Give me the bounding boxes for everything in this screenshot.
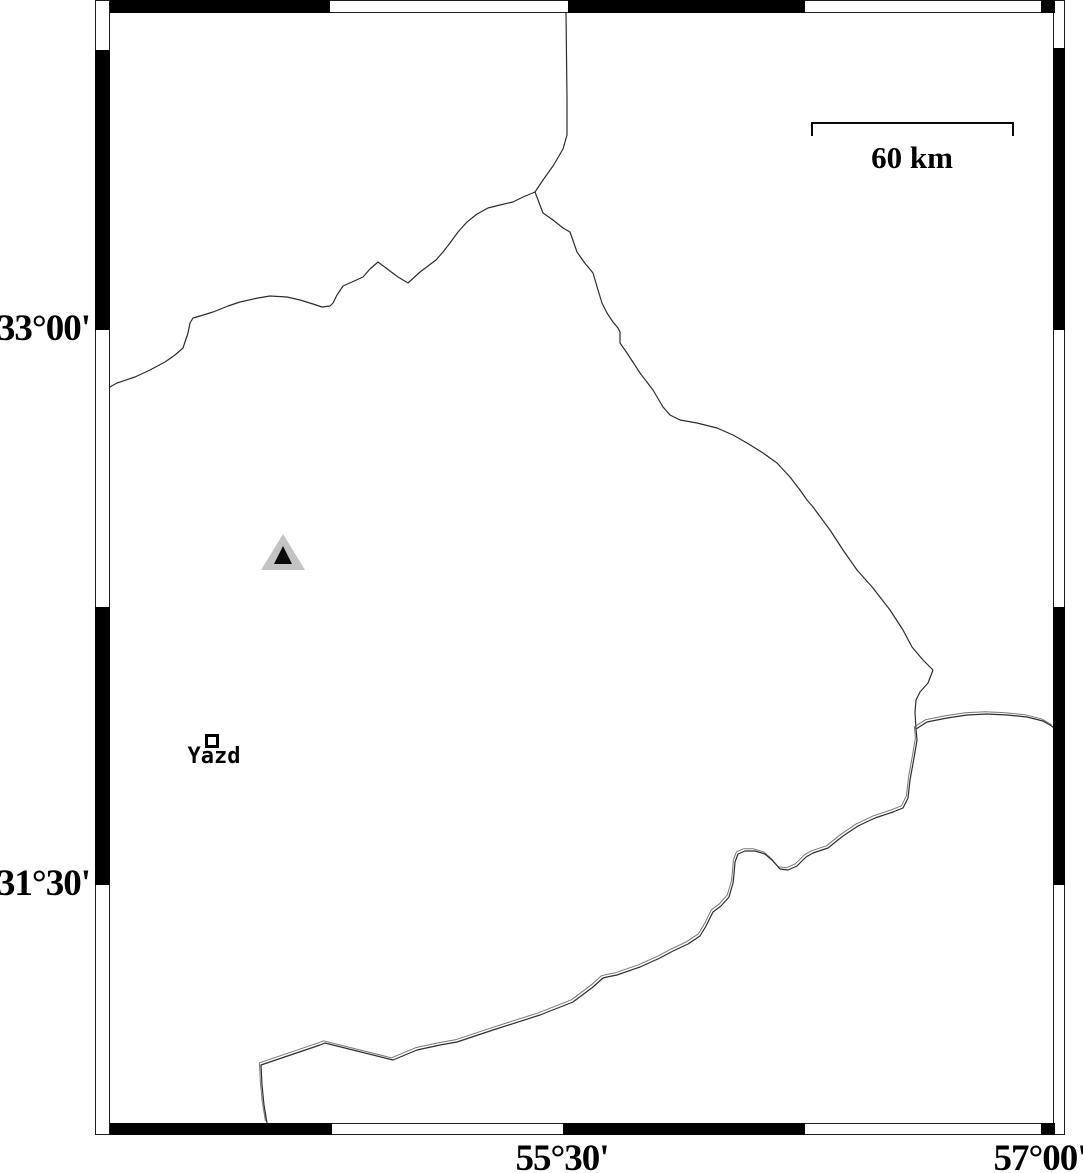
frame-black-segment-right (1053, 48, 1065, 330)
frame-black-segment-left (95, 607, 110, 885)
latitude-label-31-30: 31°30' (0, 862, 90, 905)
frame-black-segment-bottom (563, 1123, 805, 1135)
latitude-label-33-00: 33°00' (0, 307, 90, 350)
frame-black-segment-bottom (110, 1123, 332, 1135)
scale-bar-label: 60 km (871, 140, 953, 176)
frame-black-segment-right (1053, 607, 1065, 885)
longitude-label-55-30: 55°30' (515, 1137, 608, 1173)
map-figure: 33°00' 31°30' 55°30' 57°00' 60 km Yazd (0, 0, 1083, 1173)
frame-black-segment-top (568, 0, 805, 13)
frame-black-segment-left (95, 50, 110, 330)
frame-black-segment-bottom (1041, 1123, 1055, 1135)
longitude-label-57-00: 57°00' (993, 1137, 1083, 1173)
frame-black-segment-top (110, 0, 330, 13)
frame-black-segment-top (1041, 0, 1055, 13)
city-label-yazd: Yazd (188, 744, 241, 769)
